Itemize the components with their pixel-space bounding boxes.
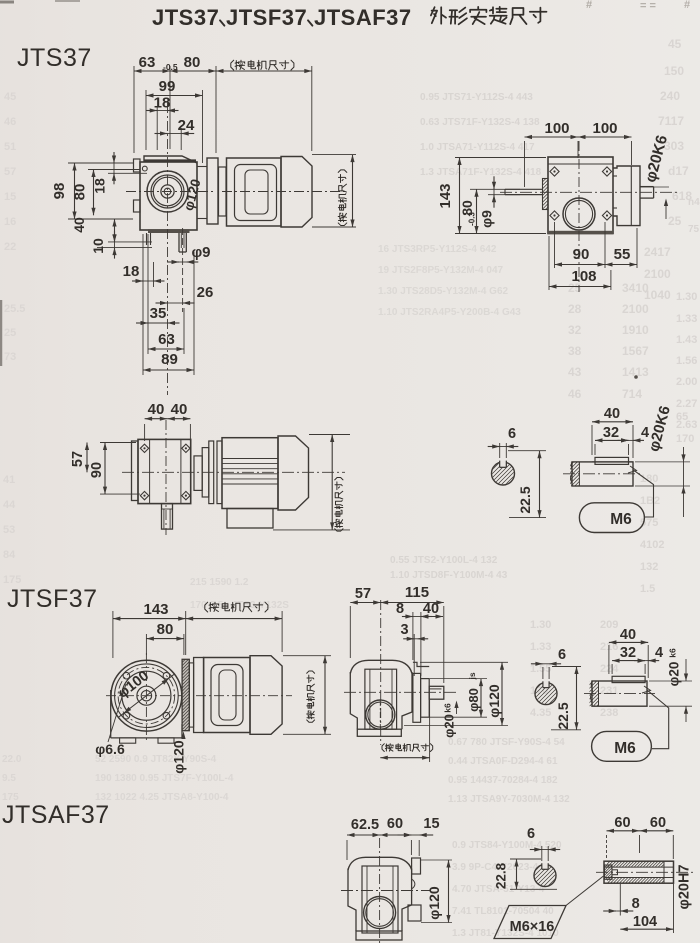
svg-text:6: 6 xyxy=(558,647,566,663)
svg-text:2417: 2417 xyxy=(644,245,671,259)
svg-text:26: 26 xyxy=(197,284,214,301)
svg-text:62.5: 62.5 xyxy=(351,817,379,833)
svg-text:40: 40 xyxy=(148,401,165,418)
svg-text:238: 238 xyxy=(600,707,618,719)
svg-text:3410: 3410 xyxy=(622,281,649,295)
svg-text:104: 104 xyxy=(633,914,657,930)
svg-text:4.35: 4.35 xyxy=(530,707,551,719)
svg-text:40: 40 xyxy=(423,601,439,617)
svg-text:99: 99 xyxy=(159,78,176,95)
svg-text:16 JTS3RP5-Y112S-4 642: 16 JTS3RP5-Y112S-4 642 xyxy=(378,244,497,255)
svg-text:1.43: 1.43 xyxy=(676,334,697,346)
svg-text:3: 3 xyxy=(400,622,408,638)
svg-text:170: 170 xyxy=(676,433,694,445)
svg-text:φ120: φ120 xyxy=(486,684,502,718)
svg-text:8: 8 xyxy=(396,601,404,617)
svg-text:= =: = = xyxy=(640,0,656,12)
svg-text:24: 24 xyxy=(178,117,195,134)
svg-text:51: 51 xyxy=(4,141,16,153)
svg-text:7.41 TL8101-70504 40: 7.41 TL8101-70504 40 xyxy=(452,906,554,917)
svg-text:1B2: 1B2 xyxy=(640,495,660,507)
svg-text:4102: 4102 xyxy=(640,539,664,551)
svg-text:k6: k6 xyxy=(668,648,678,658)
svg-text:#: # xyxy=(586,0,592,11)
svg-text:41: 41 xyxy=(3,474,15,486)
svg-text:90: 90 xyxy=(573,246,590,263)
svg-text:57: 57 xyxy=(355,586,371,602)
svg-text:18: 18 xyxy=(154,95,171,112)
svg-text:100: 100 xyxy=(592,120,617,137)
svg-text:132: 132 xyxy=(640,561,658,573)
svg-text:45: 45 xyxy=(4,91,16,103)
svg-text:JTSF37: JTSF37 xyxy=(7,585,98,613)
svg-text:80: 80 xyxy=(72,184,89,201)
svg-text:js: js xyxy=(467,672,477,680)
svg-text:M6×16: M6×16 xyxy=(510,919,555,935)
svg-text:60: 60 xyxy=(387,816,403,832)
svg-text:-0.5: -0.5 xyxy=(163,62,178,72)
svg-text:1.30: 1.30 xyxy=(530,619,551,631)
svg-text:22: 22 xyxy=(4,241,16,253)
svg-text:10: 10 xyxy=(90,238,106,254)
svg-text:φ9: φ9 xyxy=(479,210,495,228)
svg-text:M6: M6 xyxy=(614,740,636,757)
svg-text:63: 63 xyxy=(158,331,175,348)
svg-text:32: 32 xyxy=(620,645,636,661)
svg-text:84: 84 xyxy=(3,549,16,561)
svg-text:-0.3: -0.3 xyxy=(468,212,477,226)
svg-text:60: 60 xyxy=(614,815,630,831)
svg-text:209: 209 xyxy=(600,619,618,631)
svg-text:28: 28 xyxy=(568,302,582,316)
svg-text:1.30 JTS28D5-Y132M-4 G62: 1.30 JTS28D5-Y132M-4 G62 xyxy=(378,286,509,297)
svg-text:25: 25 xyxy=(668,214,682,228)
svg-text:1.3 JTSA71F-Y132S-4 418: 1.3 JTSA71F-Y132S-4 418 xyxy=(420,167,542,178)
svg-text:2.63: 2.63 xyxy=(676,419,697,431)
svg-text:143: 143 xyxy=(437,183,454,208)
svg-text:0.95 JTS71-Y112S-4 443: 0.95 JTS71-Y112S-4 443 xyxy=(420,92,533,103)
svg-text:1.56: 1.56 xyxy=(676,355,697,367)
svg-text:43: 43 xyxy=(568,365,582,379)
svg-text:6: 6 xyxy=(508,426,516,442)
svg-text:0.44 JTSA0F-D294-4 61: 0.44 JTSA0F-D294-4 61 xyxy=(448,756,558,767)
svg-text:d17: d17 xyxy=(668,164,689,178)
svg-text:φ20: φ20 xyxy=(667,662,682,687)
svg-text:18: 18 xyxy=(123,263,140,280)
svg-text:φ80: φ80 xyxy=(466,688,481,712)
svg-text:240: 240 xyxy=(660,89,680,103)
svg-text:215 1590 1.2: 215 1590 1.2 xyxy=(190,577,249,588)
svg-text:1910: 1910 xyxy=(622,323,649,337)
svg-text:0.55 JTS2-Y100L-4 132: 0.55 JTS2-Y100L-4 132 xyxy=(390,555,498,566)
svg-text:4: 4 xyxy=(655,645,663,661)
svg-text:0.67 780 JTSF-Y90S-4 54: 0.67 780 JTSF-Y90S-4 54 xyxy=(448,737,565,748)
svg-text:φ120: φ120 xyxy=(426,886,442,920)
svg-text:32: 32 xyxy=(568,323,582,337)
svg-text:60: 60 xyxy=(650,815,666,831)
svg-text:22.5: 22.5 xyxy=(555,702,571,729)
svg-text:15: 15 xyxy=(423,816,439,832)
svg-text:n4: n4 xyxy=(688,197,700,208)
svg-text:63: 63 xyxy=(139,54,156,71)
svg-text:1.0 JTSA71-Y112S-4 417: 1.0 JTSA71-Y112S-4 417 xyxy=(420,142,535,153)
svg-text:44: 44 xyxy=(3,499,16,511)
svg-text:1.5: 1.5 xyxy=(640,583,655,595)
svg-text:1.13 JTSA9Y-7030M-4 132: 1.13 JTSA9Y-7030M-4 132 xyxy=(448,794,570,805)
svg-text:M6: M6 xyxy=(610,511,632,528)
svg-text:90: 90 xyxy=(89,462,105,478)
svg-text:224: 224 xyxy=(600,663,619,675)
svg-text:φ20H7: φ20H7 xyxy=(677,864,693,909)
svg-text:132 1022 4.25 JTSA8-Y100-4: 132 1022 4.25 JTSA8-Y100-4 xyxy=(95,792,229,803)
svg-text:25.5: 25.5 xyxy=(4,303,25,315)
svg-text:9.5: 9.5 xyxy=(2,773,16,784)
svg-text:22.8: 22.8 xyxy=(494,862,509,889)
svg-text:108: 108 xyxy=(571,268,596,285)
svg-text:80: 80 xyxy=(184,54,201,71)
svg-text:1.10 JTS2RA4P5-Y200B-4 G43: 1.10 JTS2RA4P5-Y200B-4 G43 xyxy=(378,307,521,318)
svg-text:JTSAF37: JTSAF37 xyxy=(2,801,110,829)
svg-text:1.30: 1.30 xyxy=(676,291,697,303)
svg-text:25: 25 xyxy=(4,327,16,339)
svg-text:38: 38 xyxy=(568,344,582,358)
svg-text:55: 55 xyxy=(614,246,631,263)
svg-text:1567: 1567 xyxy=(622,344,649,358)
svg-text:100: 100 xyxy=(544,120,569,137)
svg-text:0.63 JTS71F-Y132S-4 138: 0.63 JTS71F-Y132S-4 138 xyxy=(420,117,540,128)
svg-text:φ6.6: φ6.6 xyxy=(95,741,125,757)
svg-text:180: 180 xyxy=(640,473,658,485)
svg-text:89: 89 xyxy=(161,351,178,368)
svg-text:714: 714 xyxy=(622,387,642,401)
svg-text:190 1380 0.95 JTS7F-Y100L-4: 190 1380 0.95 JTS7F-Y100L-4 xyxy=(95,773,234,784)
svg-text:JTS37: JTS37 xyxy=(17,44,92,72)
svg-text:45: 45 xyxy=(668,37,682,51)
svg-text:80: 80 xyxy=(157,621,174,638)
svg-text:1.33: 1.33 xyxy=(530,641,551,653)
svg-text:#: # xyxy=(684,0,690,11)
svg-text:6: 6 xyxy=(527,826,535,842)
svg-text:40: 40 xyxy=(604,406,620,422)
svg-text:98: 98 xyxy=(51,183,68,200)
svg-text:1.33: 1.33 xyxy=(676,313,697,325)
svg-text:40: 40 xyxy=(71,217,87,233)
svg-text:32: 32 xyxy=(603,425,619,441)
svg-text:18: 18 xyxy=(92,178,108,194)
svg-text:75: 75 xyxy=(688,224,700,235)
svg-text:JTS37: JTS37 xyxy=(152,5,219,30)
svg-text:19 JTS2F8P5-Y132M-4 047: 19 JTS2F8P5-Y132M-4 047 xyxy=(378,265,504,276)
svg-text:2.00: 2.00 xyxy=(676,376,697,388)
svg-text:φ120: φ120 xyxy=(171,740,187,774)
svg-text:22.5: 22.5 xyxy=(517,486,533,513)
svg-text:57: 57 xyxy=(4,166,16,178)
svg-text:231: 231 xyxy=(600,685,618,697)
svg-text:115: 115 xyxy=(405,584,429,601)
svg-text:57: 57 xyxy=(70,451,86,467)
svg-text:73: 73 xyxy=(4,351,16,363)
svg-text:7117: 7117 xyxy=(658,114,684,128)
svg-text:40: 40 xyxy=(620,627,636,643)
svg-text:0.95 14437-70284-4 182: 0.95 14437-70284-4 182 xyxy=(448,775,558,786)
svg-text:φ20: φ20 xyxy=(442,714,457,738)
svg-text:46: 46 xyxy=(4,116,16,128)
svg-text:35: 35 xyxy=(150,305,167,322)
svg-text:JTSF37: JTSF37 xyxy=(226,5,307,30)
svg-text:2.27: 2.27 xyxy=(676,398,697,410)
svg-text:1.55: 1.55 xyxy=(530,663,551,675)
svg-text:46: 46 xyxy=(568,387,582,401)
svg-text:8: 8 xyxy=(632,896,640,912)
svg-text:k6: k6 xyxy=(443,703,453,713)
svg-text:16: 16 xyxy=(4,216,16,228)
svg-text:150: 150 xyxy=(664,64,684,78)
svg-text:2100: 2100 xyxy=(622,302,649,316)
svg-text:1.10 JTSD8F-Y100M-4 43: 1.10 JTSD8F-Y100M-4 43 xyxy=(390,570,508,581)
svg-text:143: 143 xyxy=(143,601,168,618)
svg-text:2100: 2100 xyxy=(644,267,671,281)
svg-text:15: 15 xyxy=(4,191,16,203)
svg-text:53: 53 xyxy=(3,524,15,536)
svg-text:40: 40 xyxy=(171,401,188,418)
svg-text:22.0: 22.0 xyxy=(2,754,22,765)
svg-text:JTSAF37: JTSAF37 xyxy=(314,5,412,30)
